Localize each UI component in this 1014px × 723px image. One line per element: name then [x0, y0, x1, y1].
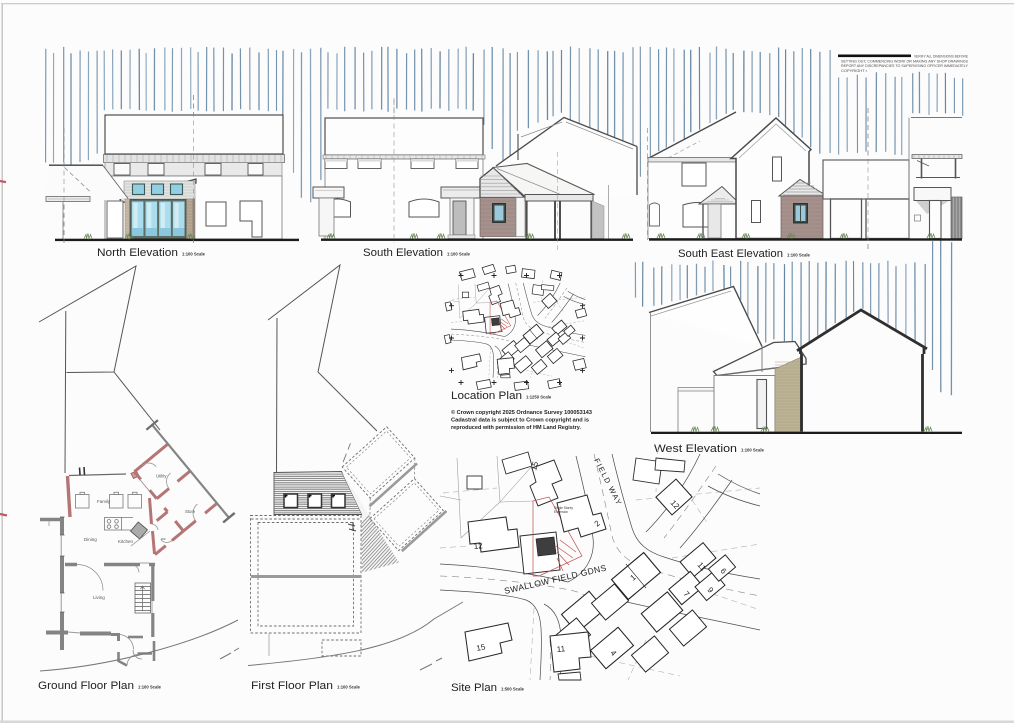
svg-text:North Elevation: North Elevation — [97, 247, 178, 259]
svg-text:Utility: Utility — [156, 474, 167, 479]
svg-text:Location Plan: Location Plan — [451, 390, 522, 402]
svg-text:Dining: Dining — [84, 537, 97, 542]
svg-text:South Elevation: South Elevation — [363, 247, 443, 259]
svg-text:Ground Floor Plan: Ground Floor Plan — [38, 680, 134, 692]
svg-text:Site Plan: Site Plan — [451, 682, 497, 694]
svg-text:1:100 Scale: 1:100 Scale — [741, 448, 764, 453]
svg-text:SETTING OUT, COMMENCING WORK O: SETTING OUT, COMMENCING WORK OR MAKING A… — [841, 59, 968, 63]
svg-text:11: 11 — [556, 644, 566, 654]
svg-text:Store: Store — [185, 509, 196, 514]
svg-text:reproduced with permission of: reproduced with permission of HM Land Re… — [451, 425, 581, 431]
svg-text:First Floor Plan: First Floor Plan — [251, 680, 333, 692]
svg-text:© Crown copyright 2025 Ordnanc: © Crown copyright 2025 Ordnance Survey 1… — [451, 409, 592, 416]
svg-text:1:100 Scale: 1:100 Scale — [337, 685, 360, 690]
svg-text:West Elevation: West Elevation — [654, 443, 737, 455]
svg-text:Living: Living — [93, 595, 105, 600]
svg-text:1:100 Scale: 1:100 Scale — [787, 253, 810, 258]
svg-text:1:1250 Scale: 1:1250 Scale — [526, 395, 552, 400]
svg-text:1:500 Scale: 1:500 Scale — [501, 687, 524, 692]
svg-text:VERIFY ALL DIMENSIONS BEFORE: VERIFY ALL DIMENSIONS BEFORE — [914, 55, 968, 59]
svg-text:wc: wc — [161, 537, 166, 541]
svg-text:Family: Family — [97, 499, 111, 504]
svg-text:1:100 Scale: 1:100 Scale — [138, 685, 161, 690]
svg-text:1:100 Scale: 1:100 Scale — [447, 252, 470, 257]
svg-text:1:100 Scale: 1:100 Scale — [182, 252, 205, 257]
svg-text:12: 12 — [473, 541, 483, 551]
svg-text:REPORT ANY DISCREPANCIES TO SU: REPORT ANY DISCREPANCIES TO SUPERVISING … — [841, 64, 968, 68]
svg-text:Kitchen: Kitchen — [118, 539, 134, 544]
svg-text:Cadastral data is subject to C: Cadastral data is subject to Crown copyr… — [451, 418, 589, 424]
svg-text:Extension: Extension — [554, 510, 568, 514]
svg-text:COPYRIGHT ▪: COPYRIGHT ▪ — [841, 69, 868, 73]
svg-text:South East Elevation: South East Elevation — [678, 248, 783, 260]
